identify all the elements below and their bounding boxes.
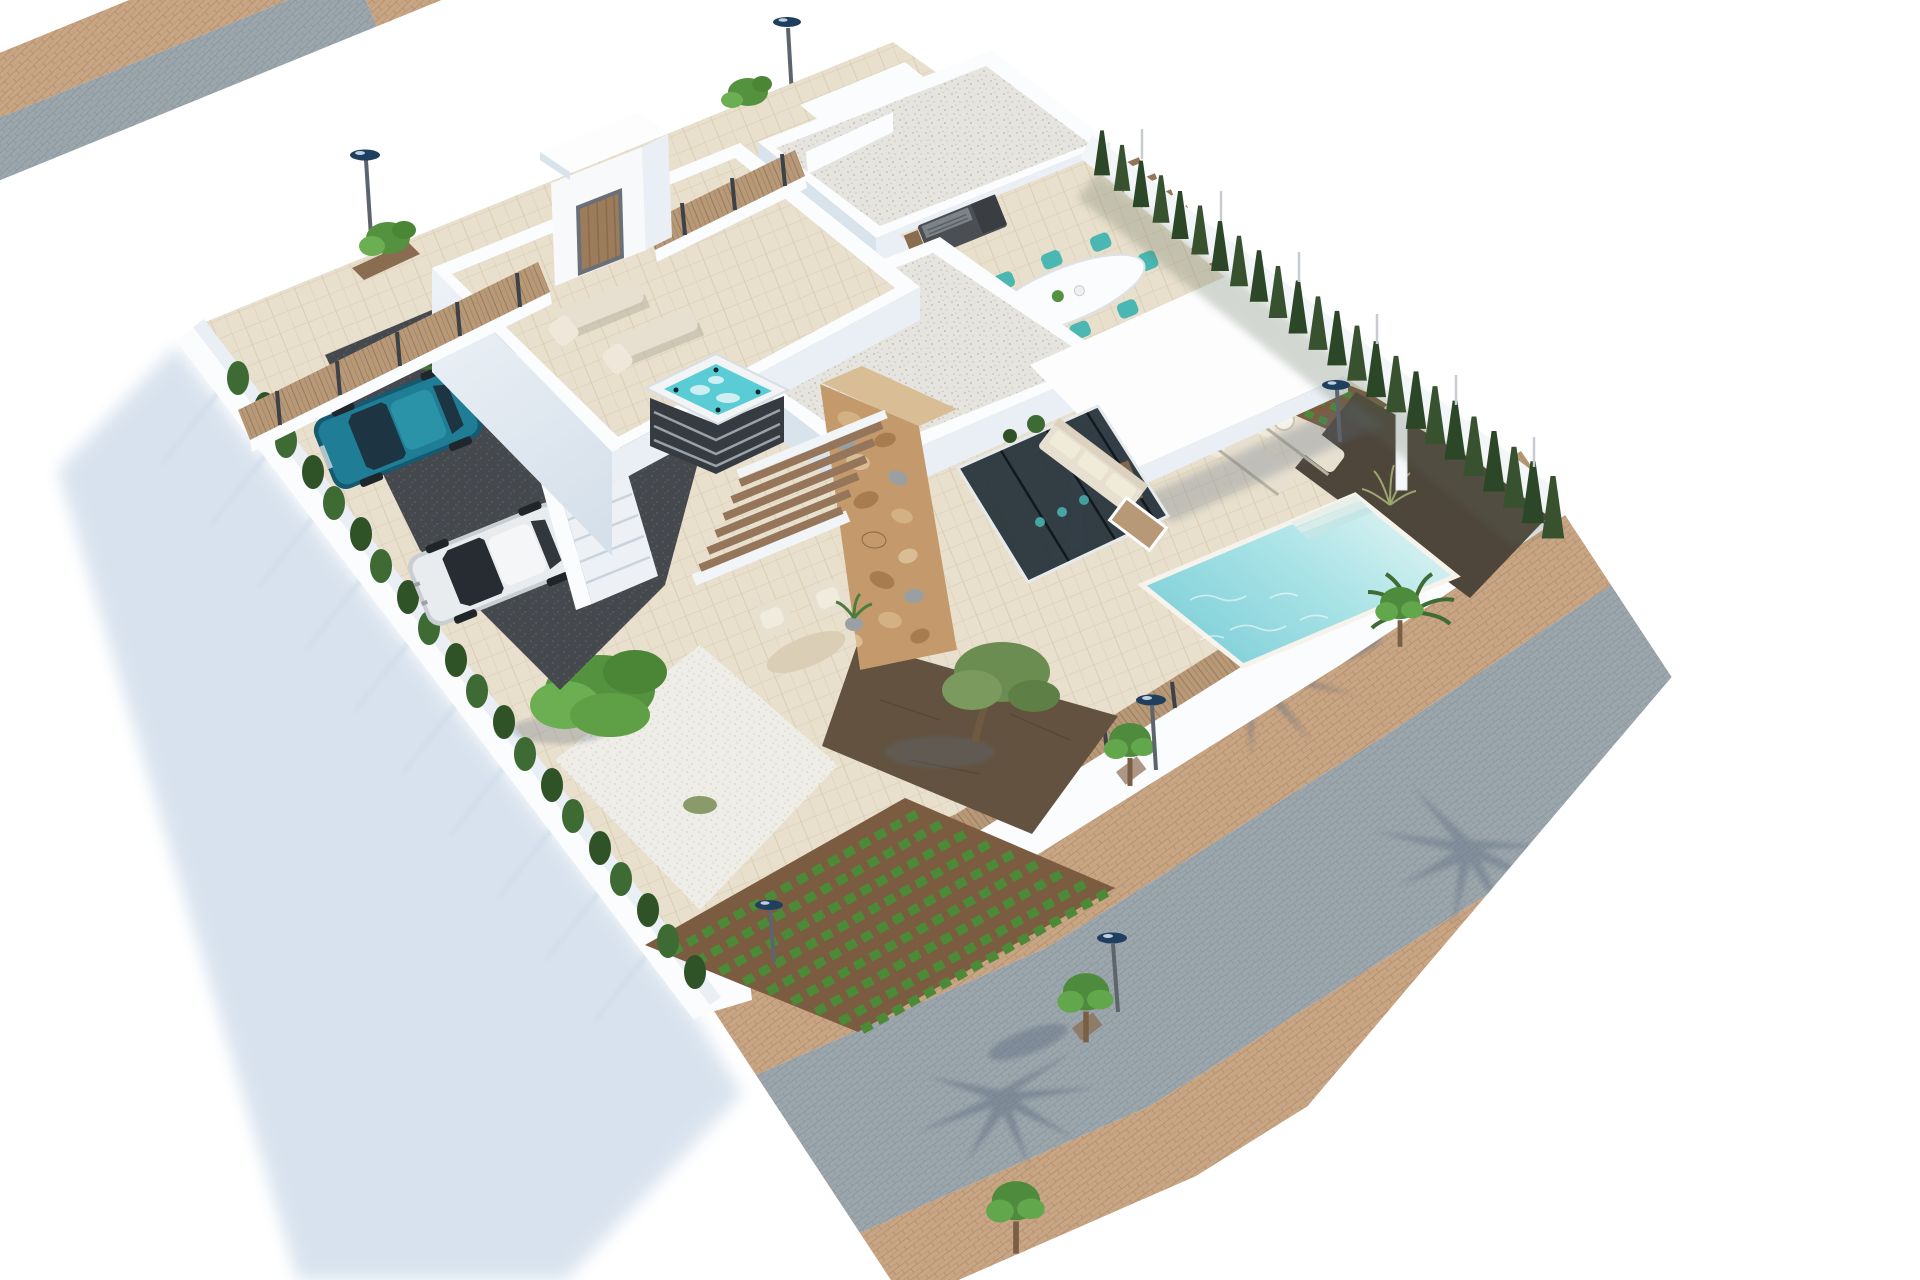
lounge-planter-2	[1003, 429, 1017, 443]
lounge-planter-1	[1027, 415, 1045, 433]
nw-brick-band-2	[355, 0, 701, 26]
grass-tuft-gravel	[683, 796, 717, 814]
portal-side	[642, 134, 672, 250]
villa-aerial-render	[0, 0, 1920, 1280]
